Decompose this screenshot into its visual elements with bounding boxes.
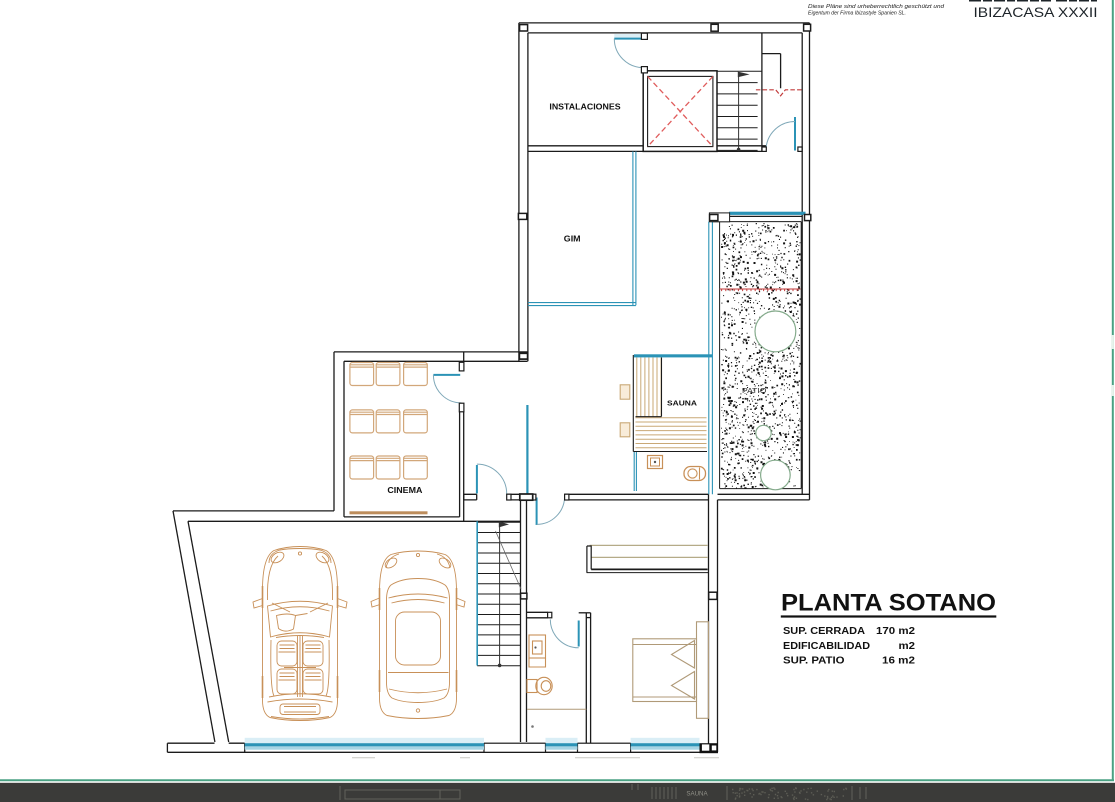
svg-text:m2: m2 (899, 641, 916, 652)
svg-text:SAUNA: SAUNA (667, 398, 698, 407)
svg-text:INSTALACIONES: INSTALACIONES (549, 103, 621, 112)
svg-text:SUP. CERRADA: SUP. CERRADA (783, 626, 865, 637)
svg-text:Eigentum der Firma Ibizastyle: Eigentum der Firma Ibizastyle Spanien SL… (808, 11, 906, 17)
svg-text:IBIZACASA XXXII: IBIZACASA XXXII (974, 5, 1098, 20)
svg-text:SAUNA: SAUNA (686, 791, 708, 798)
svg-text:PATIO: PATIO (742, 386, 767, 395)
svg-text:CINEMA: CINEMA (387, 486, 422, 495)
svg-text:SUP. PATIO: SUP. PATIO (783, 656, 845, 667)
svg-text:GIM: GIM (564, 234, 581, 244)
svg-text:PLANTA SOTANO: PLANTA SOTANO (781, 590, 996, 617)
svg-text:Diese Pläne sind urheberrechtl: Diese Pläne sind urheberrechtlich geschü… (808, 4, 945, 10)
svg-text:EDIFICABILIDAD: EDIFICABILIDAD (783, 641, 870, 652)
svg-text:170 m2: 170 m2 (876, 626, 915, 637)
svg-text:16 m2: 16 m2 (882, 656, 916, 667)
